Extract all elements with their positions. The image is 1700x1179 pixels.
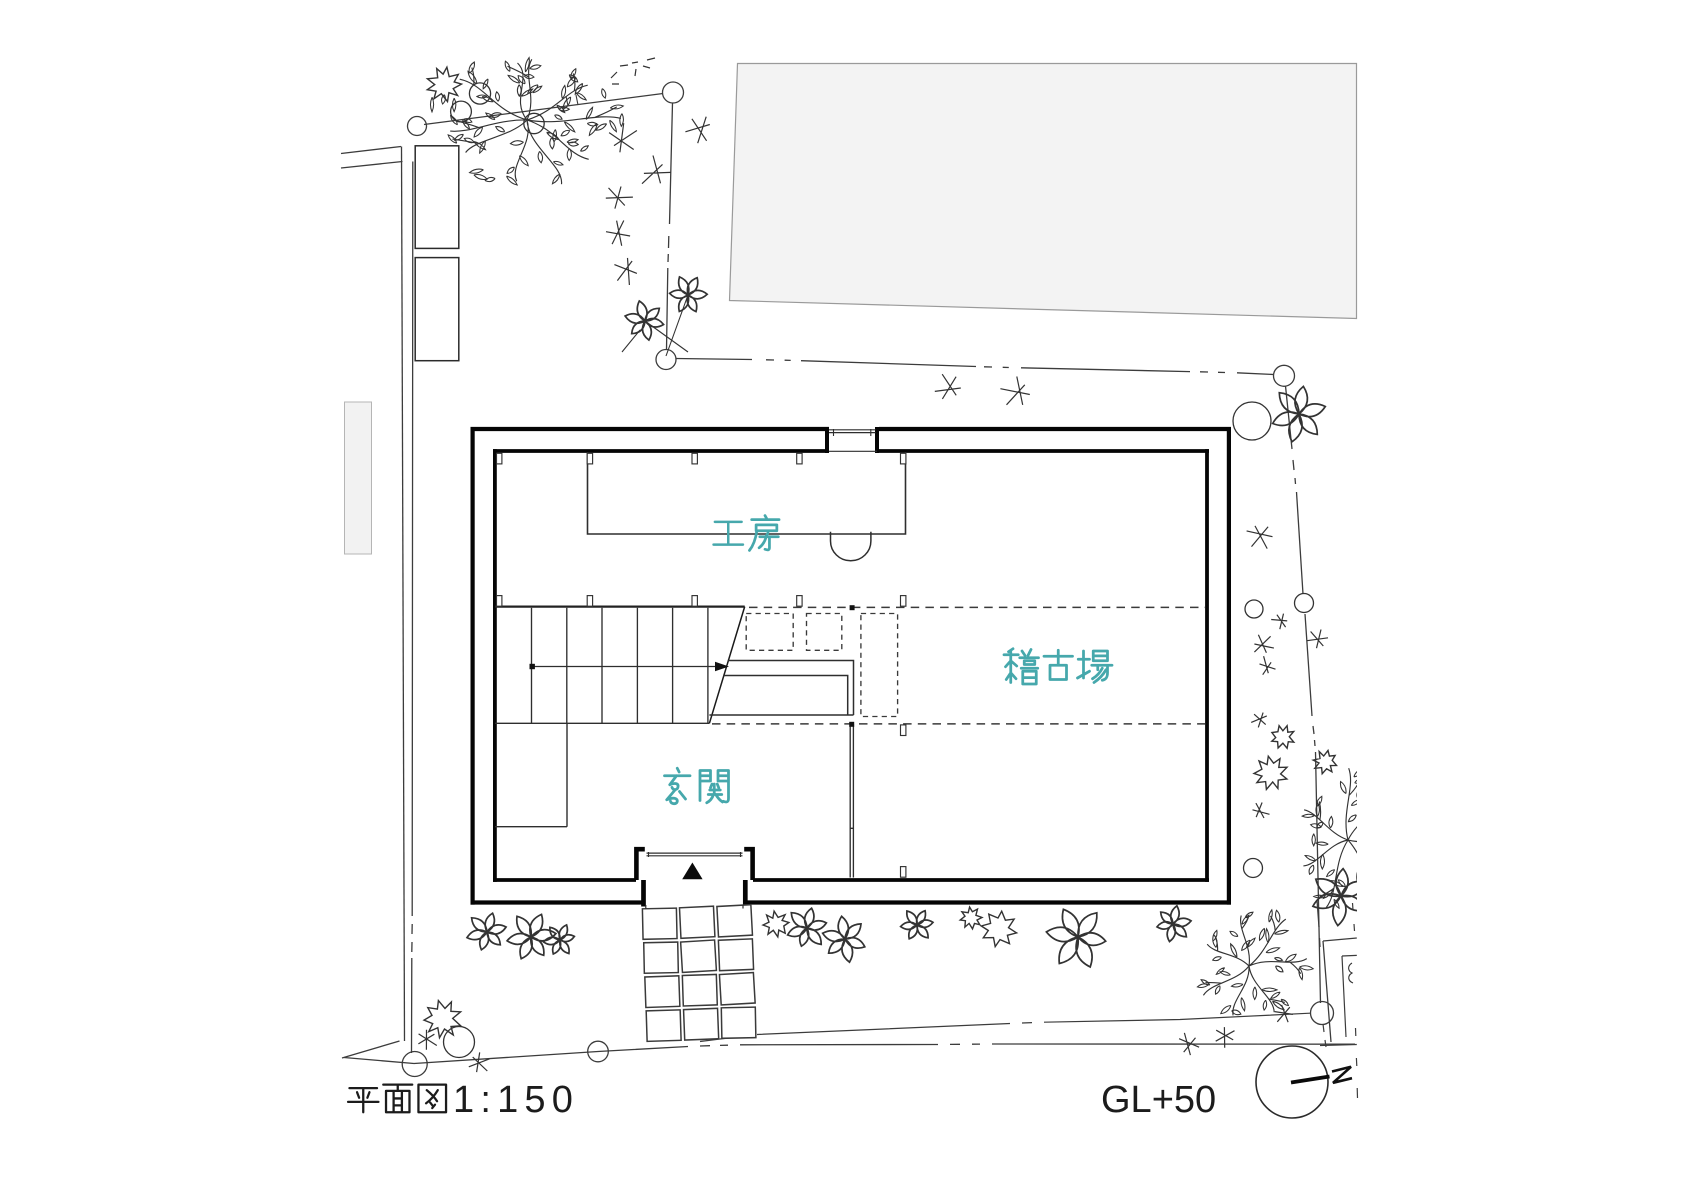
svg-text:GL+50: GL+50 [1101, 1079, 1216, 1121]
svg-text:1:150: 1:150 [453, 1079, 579, 1121]
